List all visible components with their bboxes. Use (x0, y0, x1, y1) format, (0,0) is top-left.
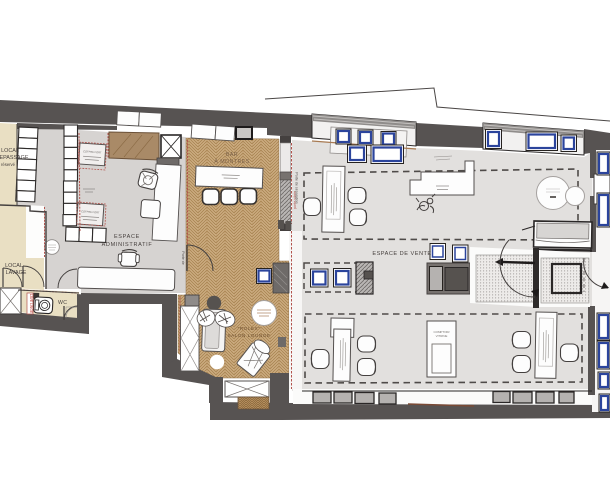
svg-text:LOCAL: LOCAL (5, 263, 23, 269)
svg-text:BAR: BAR (226, 152, 238, 158)
svg-text:SALON LOUNGE: SALON LOUNGE (228, 333, 271, 338)
svg-text:VITRINE: VITRINE (436, 334, 448, 338)
svg-text:ESPACE DE VENTE: ESPACE DE VENTE (372, 251, 431, 257)
svg-text:LOCAL: LOCAL (1, 148, 19, 154)
svg-text:À MONTRES: À MONTRES (214, 158, 249, 165)
svg-text:Porte de: Porte de (181, 251, 185, 265)
svg-text:LAVE LINGE: LAVE LINGE (29, 294, 33, 314)
svg-text:ESPACE: ESPACE (114, 234, 140, 240)
svg-text:ADMINISTRATIF: ADMINISTRATIF (102, 242, 153, 248)
svg-text:REPASSAGE: REPASSAGE (0, 155, 29, 161)
svg-text:WC: WC (58, 300, 67, 306)
svg-text:réservé: réservé (1, 162, 16, 167)
svg-text:"ROLEX": "ROLEX" (238, 326, 261, 331)
svg-text:Porte de séparation: Porte de séparation (295, 172, 299, 203)
svg-text:LAVAGE: LAVAGE (6, 270, 27, 276)
